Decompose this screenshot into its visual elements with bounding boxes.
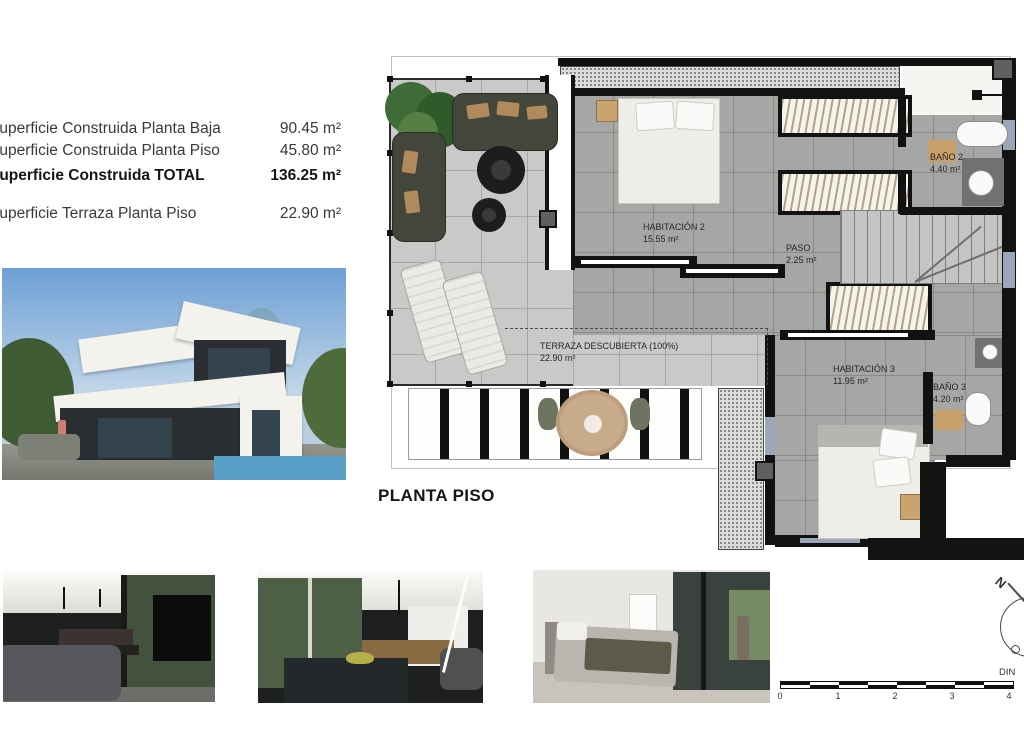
scale-tick: 3	[946, 691, 958, 701]
summary-label: Superficie Construida TOTAL	[0, 165, 205, 187]
wardrobe	[826, 282, 932, 334]
room-label-bano-3: BAÑO 3 4.20 m²	[933, 382, 966, 405]
railing-post	[466, 381, 472, 387]
pillow	[557, 622, 587, 640]
pillow	[878, 428, 918, 461]
coffee-table	[477, 146, 525, 194]
nightstand	[596, 100, 618, 122]
toilet-icon	[968, 170, 994, 196]
summary-label: Superficie Construida Planta Piso	[0, 140, 220, 162]
wall	[898, 95, 906, 147]
pillow	[635, 101, 675, 132]
dining-chair	[538, 398, 558, 430]
room-name: HABITACIÓN 3	[833, 364, 895, 376]
room-label-habitacion-3: HABITACIÓN 3 11.95 m²	[833, 364, 895, 387]
room-name: BAÑO 2	[930, 152, 963, 164]
wall	[946, 455, 1010, 467]
summary-row: Superficie Construida Planta Piso 45.80 …	[0, 140, 341, 162]
pendant-light	[99, 589, 101, 607]
dining-chair	[630, 398, 650, 430]
room-area: 4.40 m²	[930, 164, 963, 176]
pillow	[873, 456, 912, 488]
cushion	[404, 190, 421, 214]
coffee-table-top	[482, 208, 496, 222]
room-area: 15.55 m²	[643, 234, 705, 246]
gravel-band	[560, 66, 900, 90]
side-door	[252, 410, 280, 458]
wardrobe	[778, 95, 912, 137]
room-label-habitacion-2: HABITACIÓN 2 15.55 m²	[643, 222, 705, 245]
wall	[900, 207, 1010, 215]
room-label-bano-2: BAÑO 2 4.40 m²	[930, 152, 963, 175]
wall	[1002, 335, 1016, 460]
room-area: 2.25 m²	[786, 255, 817, 267]
room-area: 11.95 m²	[833, 376, 895, 388]
summary-label: Superficie Construida Planta Baja	[0, 118, 221, 140]
room-name: BAÑO 3	[933, 382, 966, 394]
plan-title: PLANTA PISO	[378, 486, 495, 506]
compass-pivot-icon	[1011, 645, 1020, 654]
stairs	[840, 210, 1004, 284]
pendant-light	[398, 580, 400, 614]
table-center	[584, 415, 602, 433]
fruit-bowl	[346, 652, 374, 664]
scale-tick: 2	[889, 691, 901, 701]
summary-value: 136.25 m²	[270, 165, 341, 187]
railing-post	[540, 76, 546, 82]
summary-value: 90.45 m²	[280, 118, 341, 140]
wall-stripe	[686, 269, 778, 273]
railing-post	[387, 381, 393, 387]
window	[765, 417, 775, 455]
scale-bar-row	[781, 685, 1013, 688]
coffee-table-top	[491, 160, 511, 180]
dining-table	[556, 390, 628, 456]
pool	[214, 456, 346, 480]
bath-mat	[935, 410, 963, 430]
fitting-line	[982, 94, 1004, 96]
bed-throw	[584, 638, 672, 674]
brochure-page: Superficie Construida Planta Baja 90.45 …	[0, 0, 1024, 732]
wall-post	[755, 461, 775, 481]
wall	[923, 372, 933, 444]
scale-bar	[780, 681, 1014, 689]
wall	[920, 462, 946, 542]
scale-tick: 0	[774, 691, 786, 701]
fitting-icon	[972, 90, 982, 100]
tv	[153, 595, 211, 661]
room-name: TERRAZA DESCUBIERTA (100%)	[540, 341, 678, 353]
summary-row: Superficie Terraza Planta Piso 22.90 m²	[0, 203, 341, 225]
scale-tick: 4	[1003, 691, 1015, 701]
sofa	[3, 645, 121, 701]
living-room-photo	[3, 569, 215, 702]
wall-stripe	[788, 333, 908, 337]
summary-value: 22.90 m²	[280, 203, 341, 225]
room-name: HABITACIÓN 2	[643, 222, 705, 234]
railing-post	[466, 76, 472, 82]
cushion	[526, 105, 547, 120]
terrace-greenery	[729, 590, 770, 660]
shower-drain	[982, 344, 998, 360]
room-label-terraza: TERRAZA DESCUBIERTA (100%) 22.90 m²	[540, 341, 678, 364]
cushion	[496, 101, 519, 117]
room-name: PASO	[786, 243, 817, 255]
toilet-icon	[965, 392, 991, 426]
garden-furniture	[18, 434, 80, 460]
summary-value: 45.80 m²	[280, 140, 341, 162]
wall	[558, 58, 1010, 66]
coffee-table	[472, 198, 506, 232]
stair-winder-line	[915, 244, 1008, 283]
kitchen-island	[284, 658, 408, 703]
pillow	[675, 101, 715, 132]
cushion	[402, 150, 419, 174]
ground-window	[98, 418, 172, 458]
din-label: DIN	[999, 667, 1015, 678]
outdoor-sofa	[452, 93, 558, 151]
summary-row: Superficie Construida Planta Baja 90.45 …	[0, 118, 341, 140]
railing-post	[387, 310, 393, 316]
summary-label: Superficie Terraza Planta Piso	[0, 203, 196, 225]
house-exterior-photo	[2, 268, 346, 480]
room-label-paso: PASO 2.25 m²	[786, 243, 817, 266]
wall	[868, 538, 1024, 560]
person	[737, 616, 749, 660]
surface-summary: Superficie Construida Planta Baja 90.45 …	[0, 118, 341, 225]
pendant-light	[63, 587, 65, 609]
room-area: 4.20 m²	[933, 394, 966, 406]
north-label: N	[992, 574, 1009, 591]
wall-post	[992, 58, 1014, 80]
bedroom-photo	[533, 570, 770, 703]
kitchen-photo	[258, 570, 483, 703]
cushion	[466, 103, 490, 120]
railing-post	[387, 76, 393, 82]
wall-stripe	[581, 260, 689, 264]
window	[1003, 252, 1015, 288]
wardrobe	[778, 170, 912, 215]
scale-tick: 1	[832, 691, 844, 701]
summary-row-total: Superficie Construida TOTAL 136.25 m²	[0, 165, 341, 187]
wall-post	[539, 210, 557, 228]
palm-tree	[302, 348, 346, 448]
glass-frame	[701, 572, 706, 690]
room-area: 22.90 m²	[540, 353, 678, 365]
stair-winder-line	[915, 226, 982, 282]
bathtub-icon	[956, 121, 1008, 147]
outdoor-sofa	[392, 132, 446, 242]
